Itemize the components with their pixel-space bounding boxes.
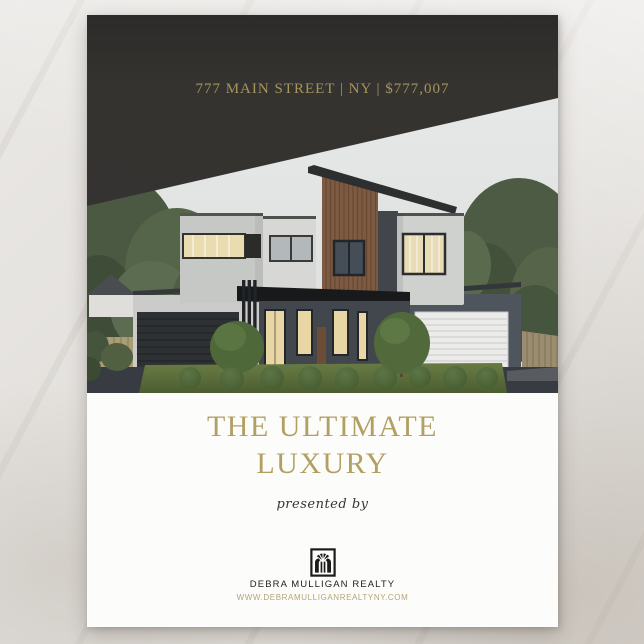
upper-box-right: [397, 213, 464, 305]
right-fence: [522, 331, 558, 373]
presented-by-label: presented by: [87, 497, 558, 512]
listing-address: 777 MAIN STREET | NY | $777,007: [87, 81, 558, 98]
wood-accent-facade: [322, 173, 378, 307]
flyer-title-line2: LUXURY: [87, 445, 558, 482]
realty-logo: [87, 548, 558, 582]
arched-window-logo-icon: [310, 548, 336, 577]
flyer-title-line1: THE ULTIMATE: [87, 408, 558, 445]
flyer-title: THE ULTIMATE LUXURY: [87, 408, 558, 482]
brand-website: WWW.DEBRAMULLIGANREALTYNY.COM: [87, 593, 558, 602]
brand-name: DEBRA MULLIGAN REALTY: [87, 579, 558, 590]
real-estate-flyer: 777 MAIN STREET | NY | $777,007 THE ULTI…: [87, 15, 558, 627]
marble-background: 777 MAIN STREET | NY | $777,007 THE ULTI…: [0, 0, 644, 644]
